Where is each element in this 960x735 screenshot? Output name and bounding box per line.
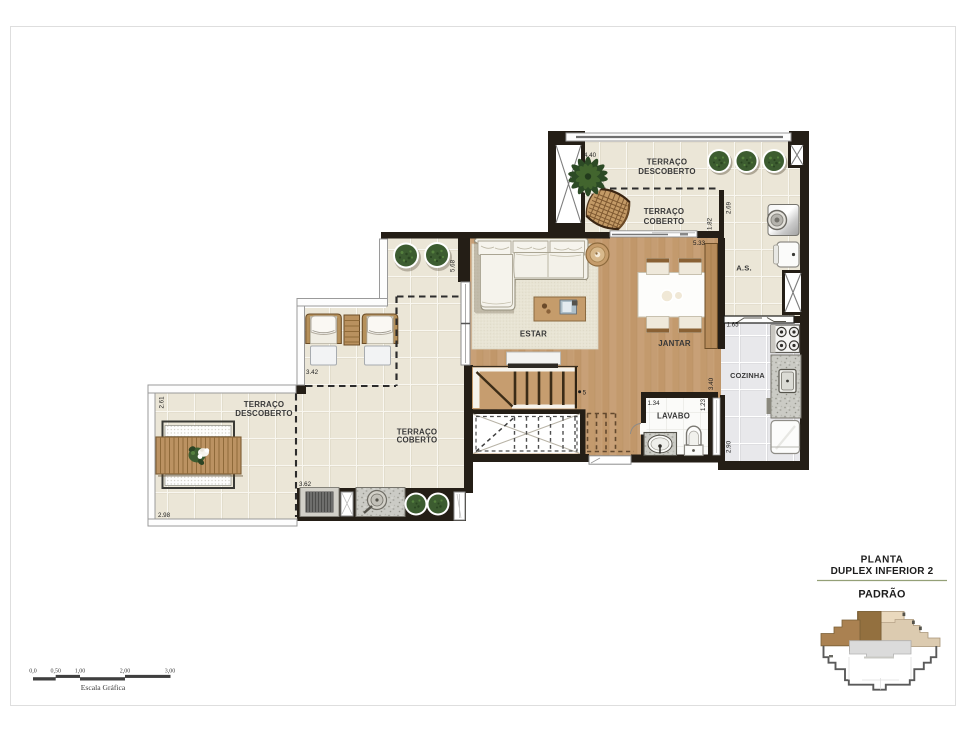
svg-text:TERRAÇO: TERRAÇO bbox=[244, 400, 284, 409]
svg-text:DESCOBERTO: DESCOBERTO bbox=[235, 409, 293, 418]
svg-text:2.90: 2.90 bbox=[726, 440, 733, 453]
svg-text:0,0: 0,0 bbox=[29, 669, 37, 675]
svg-text:TERRAÇO: TERRAÇO bbox=[647, 158, 687, 167]
svg-text:5.33: 5.33 bbox=[693, 240, 706, 247]
svg-text:Escala Gráfica: Escala Gráfica bbox=[81, 683, 126, 692]
svg-text:0,50: 0,50 bbox=[50, 669, 61, 675]
svg-text:2.98: 2.98 bbox=[158, 512, 171, 519]
svg-text:1.65: 1.65 bbox=[727, 322, 740, 329]
svg-text:1.34: 1.34 bbox=[648, 400, 661, 407]
svg-text:3.42: 3.42 bbox=[306, 369, 319, 376]
svg-text:A.S.: A.S. bbox=[736, 264, 752, 273]
svg-text:2,00: 2,00 bbox=[120, 669, 131, 675]
svg-text:1.82: 1.82 bbox=[707, 217, 714, 230]
svg-text:PLANTA: PLANTA bbox=[861, 555, 904, 566]
svg-text:COBERTO: COBERTO bbox=[644, 217, 685, 226]
svg-text:COZINHA: COZINHA bbox=[730, 371, 765, 380]
svg-text:DESCOBERTO: DESCOBERTO bbox=[638, 167, 696, 176]
svg-text:DUPLEX INFERIOR 2: DUPLEX INFERIOR 2 bbox=[831, 566, 934, 577]
svg-text:PADRÃO: PADRÃO bbox=[858, 588, 905, 601]
svg-text:3,00: 3,00 bbox=[165, 669, 176, 675]
svg-text:5: 5 bbox=[583, 390, 587, 397]
svg-text:COBERTO: COBERTO bbox=[397, 436, 438, 445]
svg-text:LAVABO: LAVABO bbox=[657, 412, 690, 421]
svg-text:2.69: 2.69 bbox=[726, 201, 733, 214]
svg-text:ESTAR: ESTAR bbox=[520, 330, 547, 339]
svg-text:1,00: 1,00 bbox=[75, 669, 86, 675]
svg-text:JANTAR: JANTAR bbox=[658, 339, 691, 348]
svg-text:1.23: 1.23 bbox=[700, 398, 707, 411]
svg-text:5.68: 5.68 bbox=[450, 259, 457, 272]
svg-text:4.40: 4.40 bbox=[584, 152, 597, 159]
svg-text:3.62: 3.62 bbox=[299, 481, 312, 488]
svg-text:TERRAÇO: TERRAÇO bbox=[644, 207, 684, 216]
svg-text:2.61: 2.61 bbox=[159, 396, 166, 409]
svg-text:3.40: 3.40 bbox=[708, 377, 715, 390]
